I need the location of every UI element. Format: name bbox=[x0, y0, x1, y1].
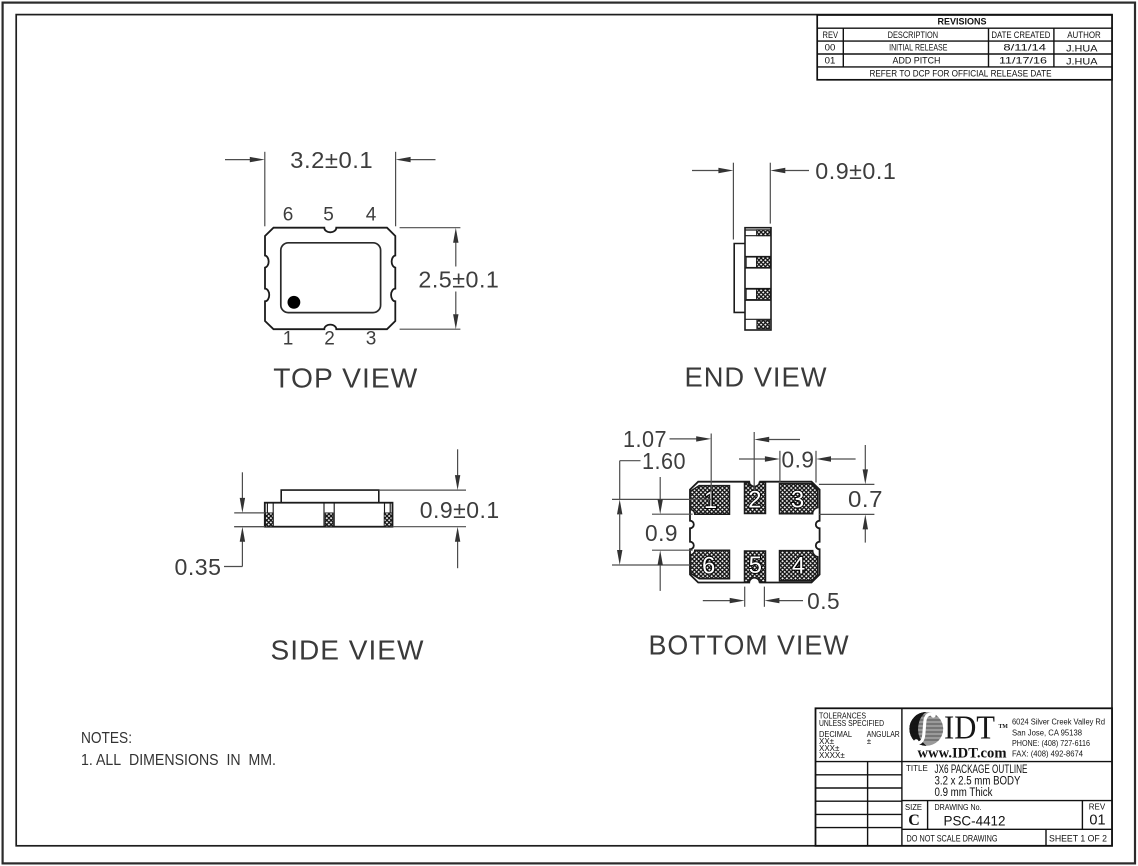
svg-text:AUTHOR: AUTHOR bbox=[1067, 30, 1101, 40]
svg-text:PHONE: (408) 727-6116: PHONE: (408) 727-6116 bbox=[1012, 738, 1090, 748]
svg-text:01: 01 bbox=[1089, 813, 1105, 829]
svg-text:4: 4 bbox=[366, 205, 377, 226]
svg-text:NOTES:: NOTES: bbox=[81, 730, 132, 747]
svg-text:0.9 mm Thick: 0.9 mm Thick bbox=[935, 787, 993, 799]
svg-text:0.9: 0.9 bbox=[782, 446, 815, 472]
svg-text:2: 2 bbox=[324, 328, 335, 349]
svg-text:IDT: IDT bbox=[944, 710, 995, 747]
svg-text:SIZE: SIZE bbox=[905, 803, 922, 812]
svg-text:J.HUA: J.HUA bbox=[1066, 57, 1097, 67]
svg-text:2.5±0.1: 2.5±0.1 bbox=[418, 267, 499, 293]
svg-text:REV: REV bbox=[823, 30, 839, 40]
svg-text:4: 4 bbox=[792, 552, 805, 579]
svg-text:San Jose, CA 95138: San Jose, CA 95138 bbox=[1012, 728, 1082, 738]
svg-text:±: ± bbox=[867, 737, 872, 746]
svg-text:1. ALL DIMENSIONS IN MM.: 1. ALL DIMENSIONS IN MM. bbox=[81, 752, 276, 769]
svg-text:BOTTOM VIEW: BOTTOM VIEW bbox=[649, 630, 850, 661]
svg-text:3: 3 bbox=[366, 328, 377, 349]
svg-text:DESCRIPTION: DESCRIPTION bbox=[888, 30, 939, 40]
svg-text:SHEET 1 OF 2: SHEET 1 OF 2 bbox=[1049, 833, 1107, 843]
svg-text:3: 3 bbox=[791, 487, 804, 514]
svg-text:0.9: 0.9 bbox=[645, 520, 678, 546]
svg-text:0.9±0.1: 0.9±0.1 bbox=[420, 497, 500, 523]
svg-text:6024 Silver Creek Valley Rd: 6024 Silver Creek Valley Rd bbox=[1012, 717, 1105, 727]
svg-text:5: 5 bbox=[323, 205, 334, 226]
svg-text:5: 5 bbox=[749, 552, 762, 579]
svg-text:J.HUA: J.HUA bbox=[1066, 44, 1097, 54]
svg-text:UNLESS SPECIFIED: UNLESS SPECIFIED bbox=[819, 719, 884, 728]
svg-text:0.35: 0.35 bbox=[175, 554, 222, 580]
svg-text:REVISIONS: REVISIONS bbox=[938, 17, 987, 28]
svg-text:3.2±0.1: 3.2±0.1 bbox=[290, 147, 373, 173]
svg-text:REFER TO DCP FOR OFFICIAL RELE: REFER TO DCP FOR OFFICIAL RELEASE DATE bbox=[870, 69, 1052, 79]
svg-text:TOP VIEW: TOP VIEW bbox=[273, 363, 418, 394]
svg-text:TITLE: TITLE bbox=[906, 764, 928, 773]
svg-text:1: 1 bbox=[283, 328, 294, 349]
svg-text:DO NOT SCALE DRAWING: DO NOT SCALE DRAWING bbox=[907, 834, 998, 844]
svg-text:3.2 x 2.5 mm BODY: 3.2 x 2.5 mm BODY bbox=[935, 776, 1021, 788]
svg-text:PSC-4412: PSC-4412 bbox=[944, 813, 1006, 829]
svg-text:8/11/14: 8/11/14 bbox=[1003, 43, 1046, 53]
svg-text:ADD PITCH: ADD PITCH bbox=[893, 56, 941, 66]
svg-text:DRAWING No.: DRAWING No. bbox=[935, 803, 982, 812]
svg-text:ANGULAR: ANGULAR bbox=[867, 730, 900, 739]
svg-text:INITIAL RELEASE: INITIAL RELEASE bbox=[889, 43, 947, 53]
svg-text:JX6 PACKAGE OUTLINE: JX6 PACKAGE OUTLINE bbox=[935, 764, 1028, 776]
svg-text:DATE CREATED: DATE CREATED bbox=[991, 30, 1050, 40]
svg-text:1.60: 1.60 bbox=[642, 448, 686, 474]
svg-text:0.5: 0.5 bbox=[807, 588, 840, 614]
svg-text:SIDE VIEW: SIDE VIEW bbox=[271, 635, 425, 666]
svg-text:FAX: (408) 492-8674: FAX: (408) 492-8674 bbox=[1012, 748, 1083, 758]
svg-text:1: 1 bbox=[704, 487, 717, 514]
svg-text:6: 6 bbox=[702, 553, 715, 580]
svg-text:www.IDT.com: www.IDT.com bbox=[918, 745, 1007, 761]
svg-text:0.7: 0.7 bbox=[848, 486, 883, 512]
svg-text:01: 01 bbox=[825, 56, 836, 66]
svg-text:END VIEW: END VIEW bbox=[685, 362, 828, 393]
svg-text:TM: TM bbox=[999, 724, 1009, 730]
svg-text:REV: REV bbox=[1089, 803, 1106, 812]
svg-text:C: C bbox=[908, 812, 920, 829]
svg-text:00: 00 bbox=[825, 43, 836, 53]
svg-text:11/17/16: 11/17/16 bbox=[999, 55, 1047, 65]
svg-text:XXXX±: XXXX± bbox=[819, 751, 845, 760]
svg-text:6: 6 bbox=[283, 205, 294, 226]
svg-text:0.9±0.1: 0.9±0.1 bbox=[815, 158, 896, 184]
